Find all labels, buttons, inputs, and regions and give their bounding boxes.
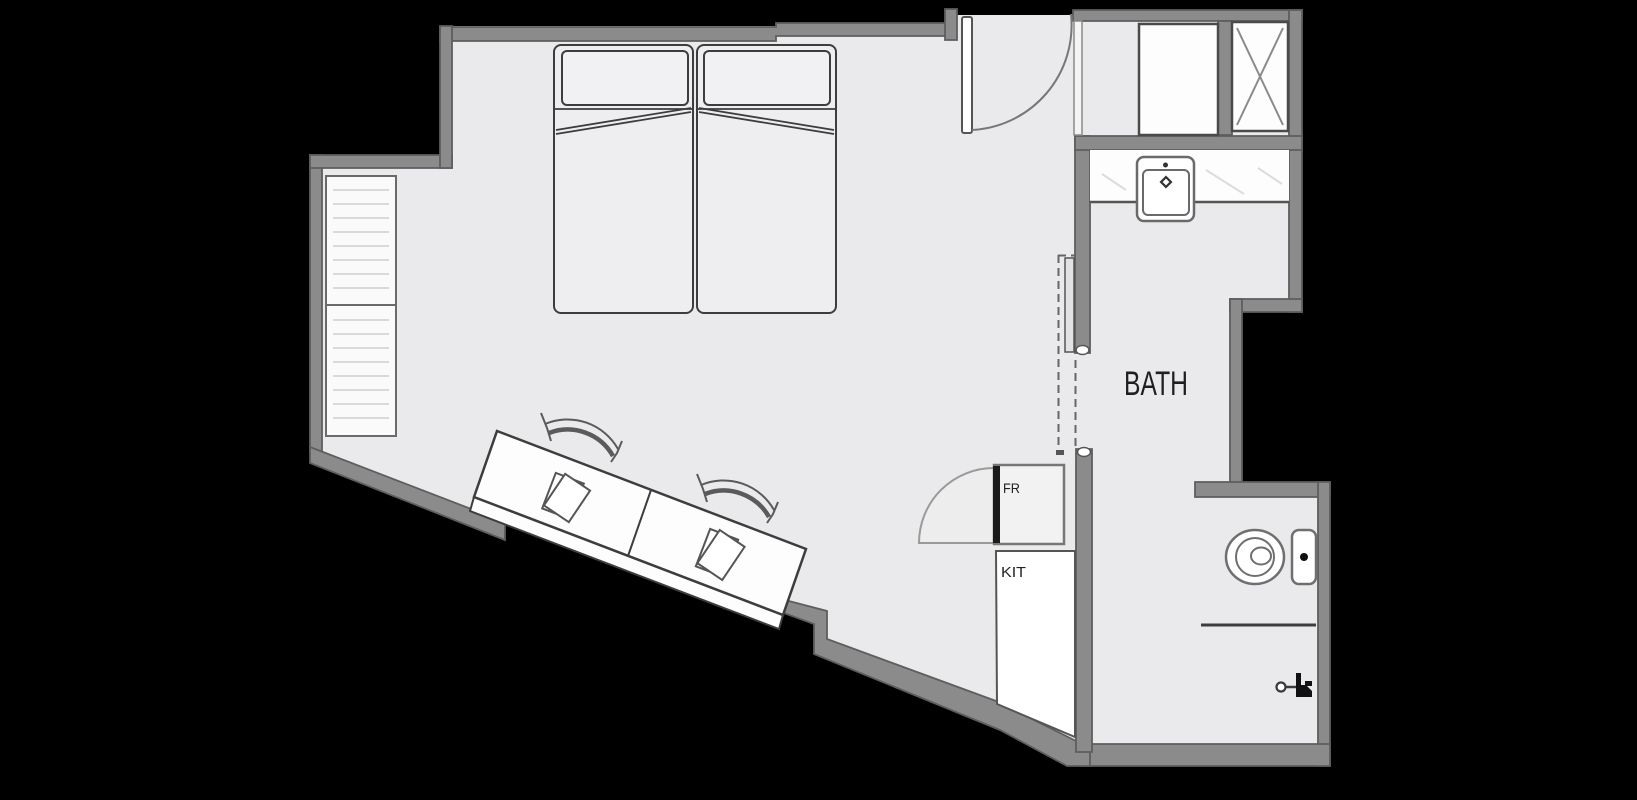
svg-text:FR: FR — [1003, 480, 1020, 496]
svg-text:KIT: KIT — [1001, 564, 1026, 581]
svg-text:BATH: BATH — [1124, 365, 1188, 403]
